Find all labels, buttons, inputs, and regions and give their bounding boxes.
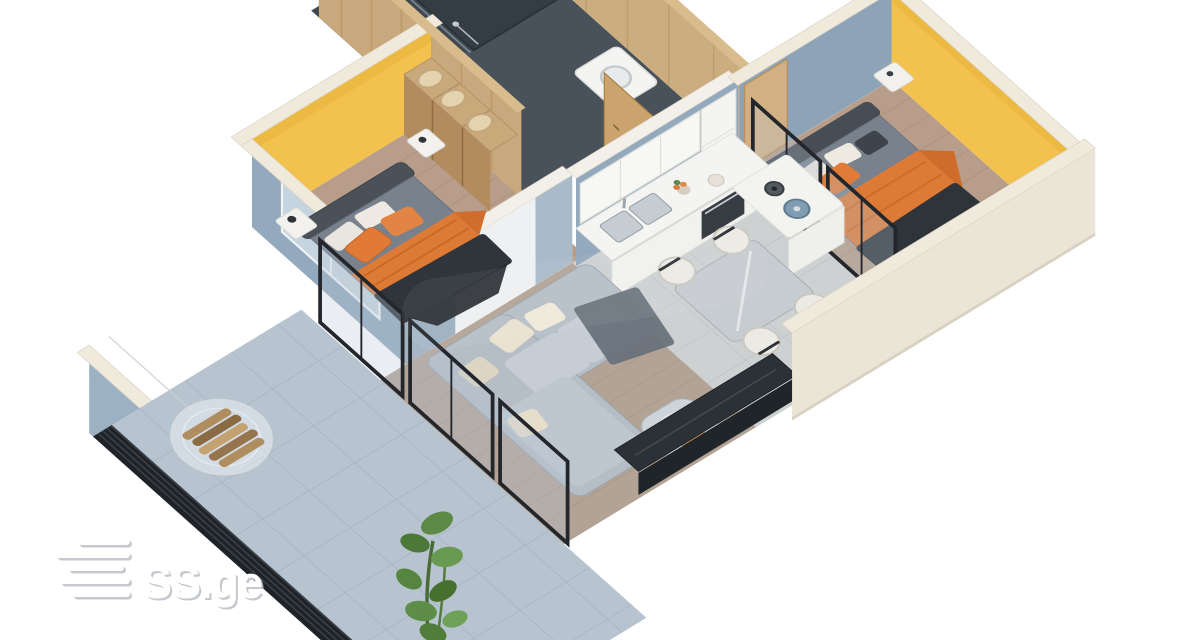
floor-plan-render: SS.ge SS.ge xyxy=(0,0,1200,640)
ssge-logo-lines-icon xyxy=(56,538,132,600)
ssge-logo-text: SS.ge xyxy=(142,557,262,608)
floor-plan-page: SS.ge SS.ge xyxy=(0,0,1200,640)
